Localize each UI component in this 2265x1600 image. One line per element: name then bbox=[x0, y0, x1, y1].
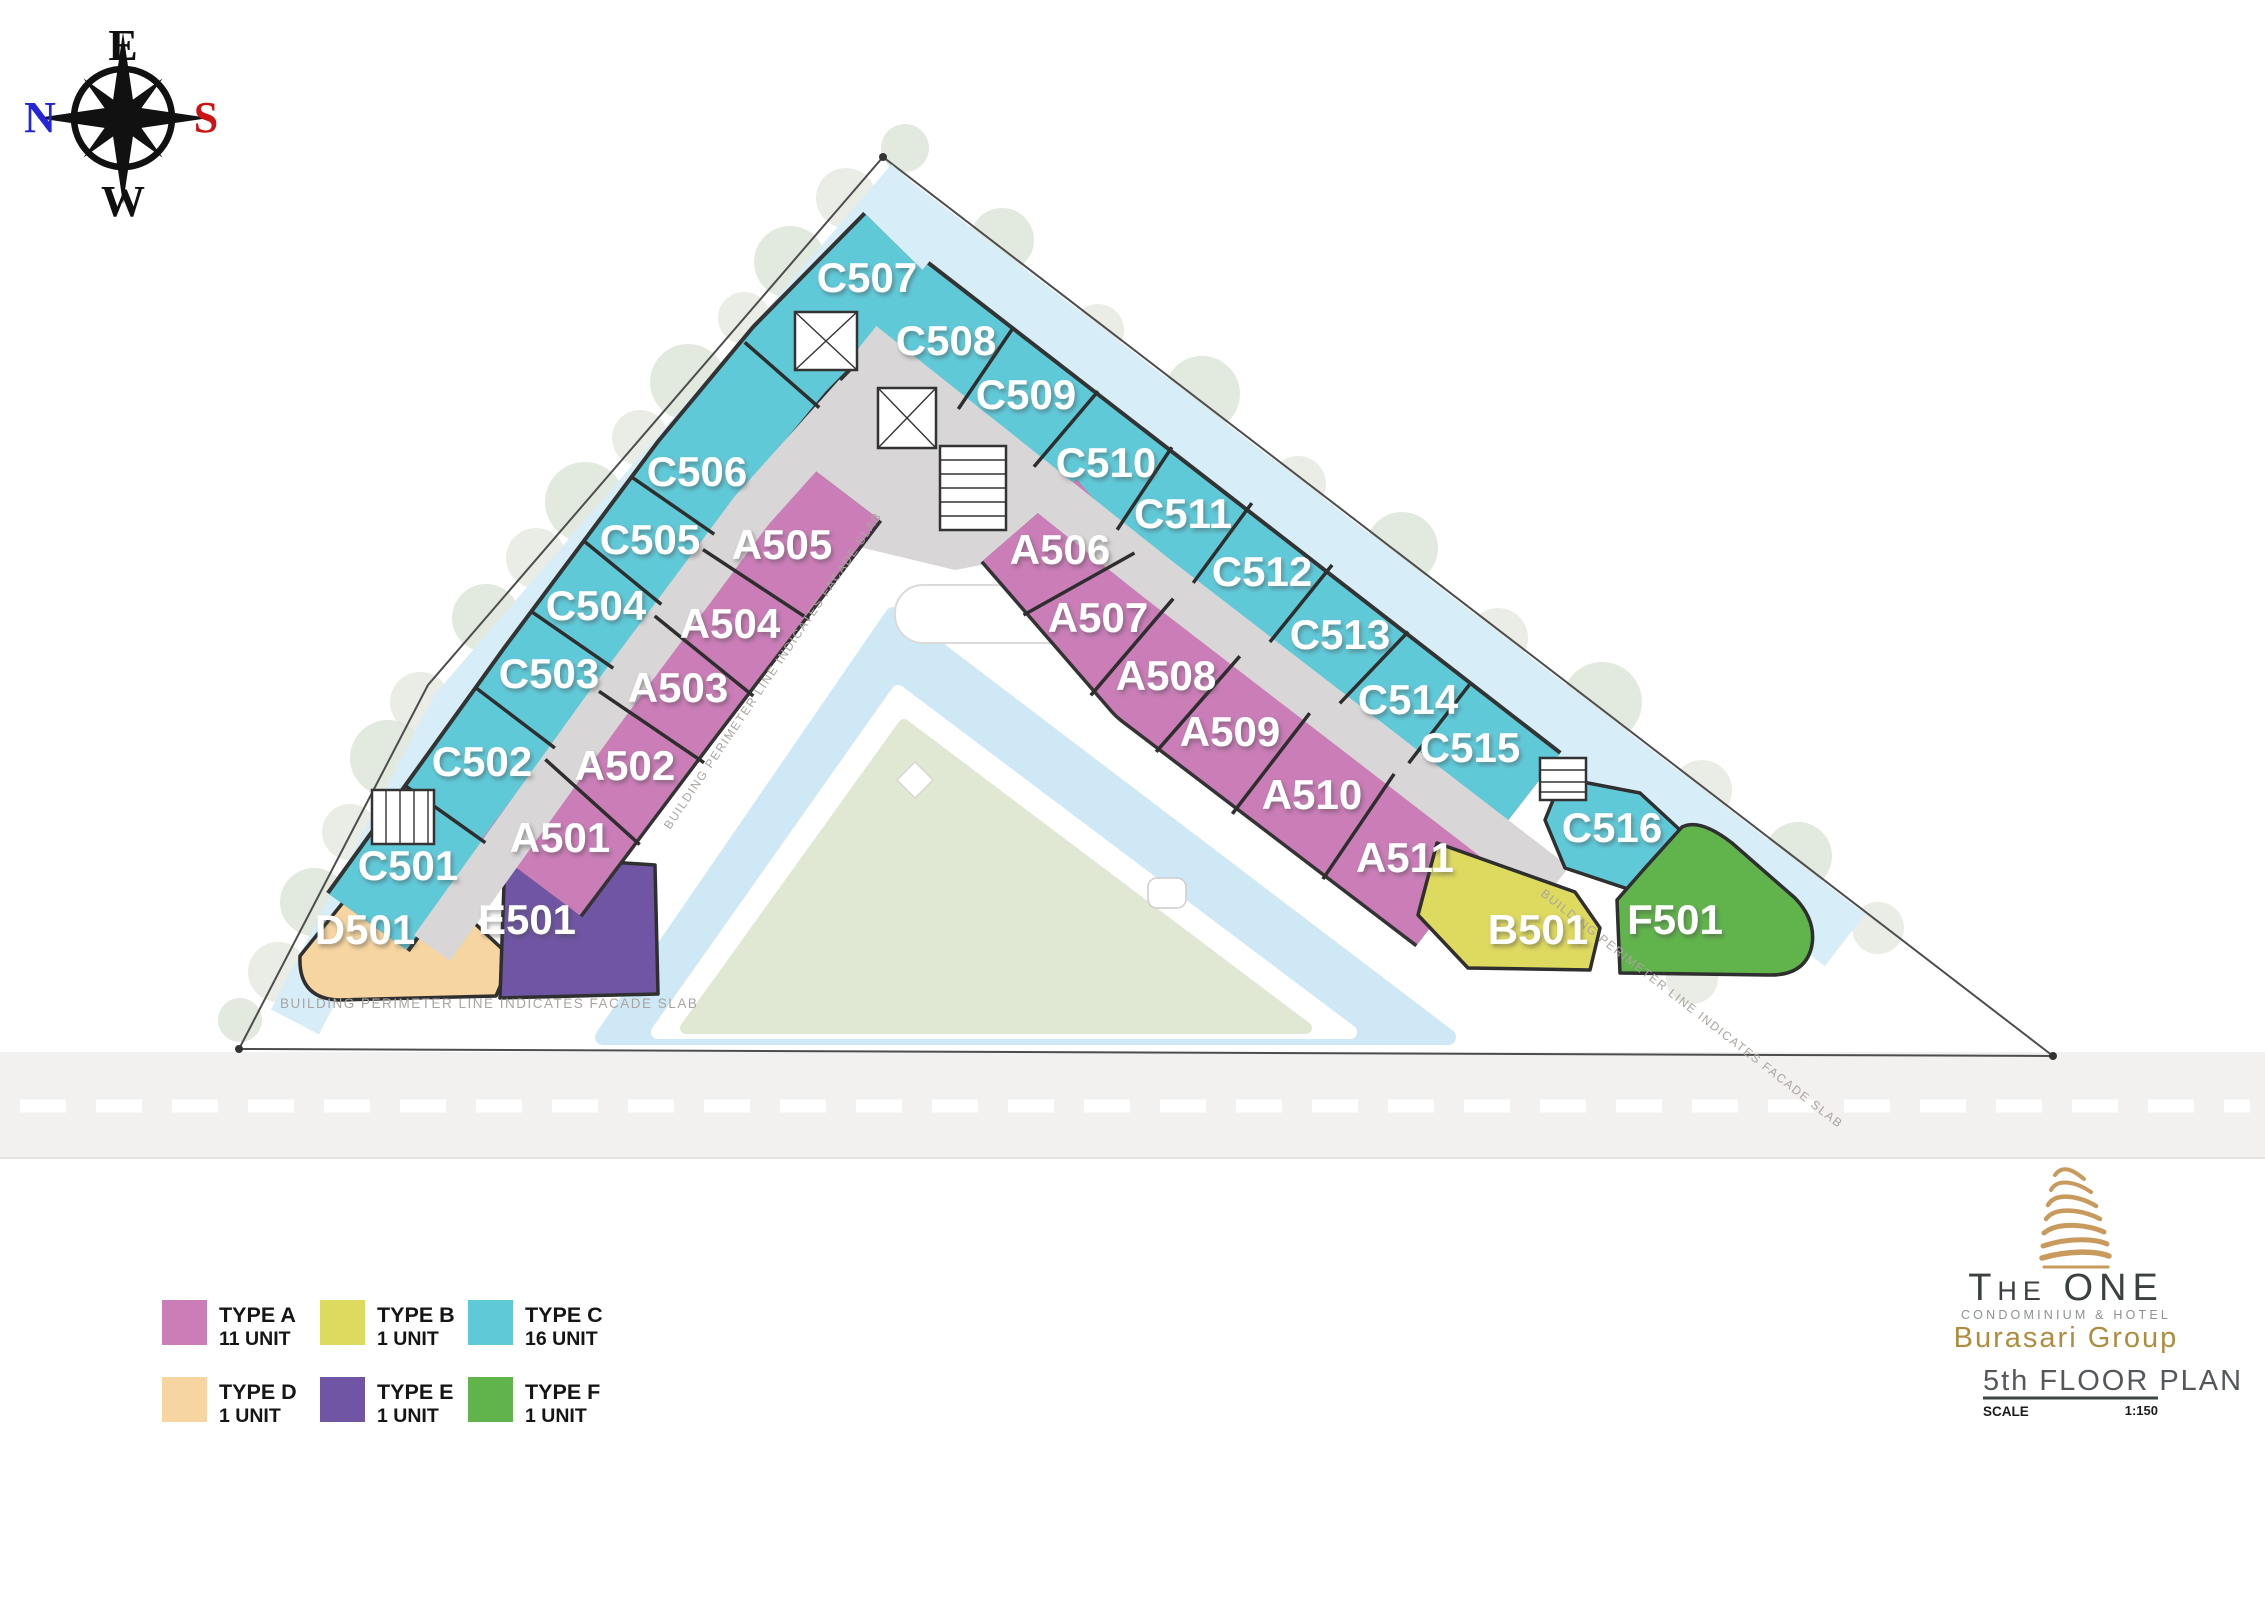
elevator-core-apex-left bbox=[795, 312, 857, 370]
compass-rose: E N S W bbox=[24, 21, 218, 226]
unit-label-C510: C510 bbox=[1056, 439, 1156, 486]
legend-label-e: TYPE E bbox=[377, 1380, 453, 1404]
tree-icon bbox=[881, 124, 929, 172]
scale-value: 1:150 bbox=[2125, 1403, 2158, 1418]
unit-label-A501: A501 bbox=[510, 814, 610, 861]
brand-group-name: Burasari Group bbox=[1954, 1322, 2179, 1354]
legend-swatch-c bbox=[468, 1300, 513, 1345]
legend-count-c: 16 UNIT bbox=[525, 1328, 598, 1350]
unit-label-C516: C516 bbox=[1562, 804, 1662, 851]
unit-label-A509: A509 bbox=[1180, 708, 1280, 755]
perimeter-note-bottom: BUILDING PERIMETER LINE INDICATES FACADE… bbox=[280, 996, 698, 1011]
scale-label: SCALE bbox=[1983, 1404, 2029, 1419]
unit-label-A506: A506 bbox=[1010, 526, 1110, 573]
unit-label-A502: A502 bbox=[575, 742, 675, 789]
compass-west-label: W bbox=[101, 177, 145, 226]
unit-label-C515: C515 bbox=[1420, 724, 1520, 771]
unit-label-C513: C513 bbox=[1290, 611, 1390, 658]
legend-swatch-e bbox=[320, 1377, 365, 1422]
stair-core-right-end bbox=[1540, 758, 1586, 800]
unit-label-C508: C508 bbox=[896, 317, 996, 364]
tree-icon bbox=[218, 998, 262, 1042]
legend-count-d: 1 UNIT bbox=[219, 1405, 281, 1427]
compass-south-label: S bbox=[194, 93, 218, 142]
road bbox=[0, 1052, 2265, 1158]
legend-item-type-e: TYPE E 1 UNIT bbox=[320, 1377, 453, 1427]
legend-label-a: TYPE A bbox=[219, 1303, 296, 1327]
jacuzzi bbox=[1148, 878, 1186, 908]
legend: TYPE A 11 UNIT TYPE B 1 UNIT TYPE C 16 U… bbox=[162, 1300, 603, 1427]
legend-item-type-b: TYPE B 1 UNIT bbox=[320, 1300, 455, 1350]
legend-label-b: TYPE B bbox=[377, 1303, 455, 1327]
unit-label-C512: C512 bbox=[1212, 548, 1312, 595]
unit-label-C507: C507 bbox=[817, 254, 917, 301]
floor-plan-title: 5th FLOOR PLAN bbox=[1983, 1365, 2243, 1397]
brand-building-icon bbox=[2042, 1169, 2109, 1267]
unit-label-A511: A511 bbox=[1356, 834, 1454, 881]
unit-label-A508: A508 bbox=[1116, 652, 1216, 699]
legend-item-type-a: TYPE A 11 UNIT bbox=[162, 1300, 296, 1350]
unit-label-C506: C506 bbox=[647, 448, 747, 495]
floor-plan-canvas: BUILDING PERIMETER LINE INDICATES FACADE… bbox=[0, 0, 2265, 1600]
unit-label-B501: B501 bbox=[1488, 906, 1588, 953]
unit-label-D501: D501 bbox=[315, 906, 415, 953]
unit-label-C503: C503 bbox=[499, 650, 599, 697]
brand-name: The ONE bbox=[1968, 1267, 2164, 1309]
unit-label-C511: C511 bbox=[1134, 490, 1232, 537]
unit-label-A504: A504 bbox=[680, 600, 781, 647]
legend-swatch-a bbox=[162, 1300, 207, 1345]
legend-item-type-c: TYPE C 16 UNIT bbox=[468, 1300, 603, 1350]
unit-label-C514: C514 bbox=[1358, 676, 1459, 723]
unit-label-A510: A510 bbox=[1262, 771, 1362, 818]
legend-swatch-d bbox=[162, 1377, 207, 1422]
legend-item-type-f: TYPE F 1 UNIT bbox=[468, 1377, 600, 1427]
legend-swatch-f bbox=[468, 1377, 513, 1422]
floor-plan-page: BUILDING PERIMETER LINE INDICATES FACADE… bbox=[0, 0, 2265, 1600]
compass-east-label: E bbox=[108, 21, 137, 70]
unit-label-C501: C501 bbox=[358, 842, 458, 889]
unit-label-A503: A503 bbox=[628, 664, 728, 711]
brand-subtitle: CONDOMINIUM & HOTEL bbox=[1961, 1308, 2171, 1322]
unit-label-A505: A505 bbox=[732, 521, 832, 568]
elevator-core-apex bbox=[878, 388, 936, 448]
unit-label-C505: C505 bbox=[600, 516, 700, 563]
unit-label-F501: F501 bbox=[1627, 896, 1723, 943]
legend-label-c: TYPE C bbox=[525, 1303, 603, 1327]
legend-count-e: 1 UNIT bbox=[377, 1405, 439, 1427]
legend-item-type-d: TYPE D 1 UNIT bbox=[162, 1377, 297, 1427]
legend-count-a: 11 UNIT bbox=[219, 1328, 291, 1350]
legend-count-f: 1 UNIT bbox=[525, 1405, 587, 1427]
legend-label-d: TYPE D bbox=[219, 1380, 297, 1404]
legend-label-f: TYPE F bbox=[525, 1380, 600, 1404]
logo-block: The ONE CONDOMINIUM & HOTEL Burasari Gro… bbox=[1954, 1169, 2243, 1419]
stair-core-apex bbox=[940, 446, 1006, 530]
unit-label-C509: C509 bbox=[976, 371, 1076, 418]
stair-core-left-end bbox=[372, 790, 434, 844]
unit-label-A507: A507 bbox=[1048, 594, 1148, 641]
legend-count-b: 1 UNIT bbox=[377, 1328, 439, 1350]
unit-label-C504: C504 bbox=[546, 582, 647, 629]
compass-north-label: N bbox=[24, 93, 56, 142]
legend-swatch-b bbox=[320, 1300, 365, 1345]
unit-label-E501: E501 bbox=[478, 896, 576, 943]
unit-label-C502: C502 bbox=[432, 738, 532, 785]
